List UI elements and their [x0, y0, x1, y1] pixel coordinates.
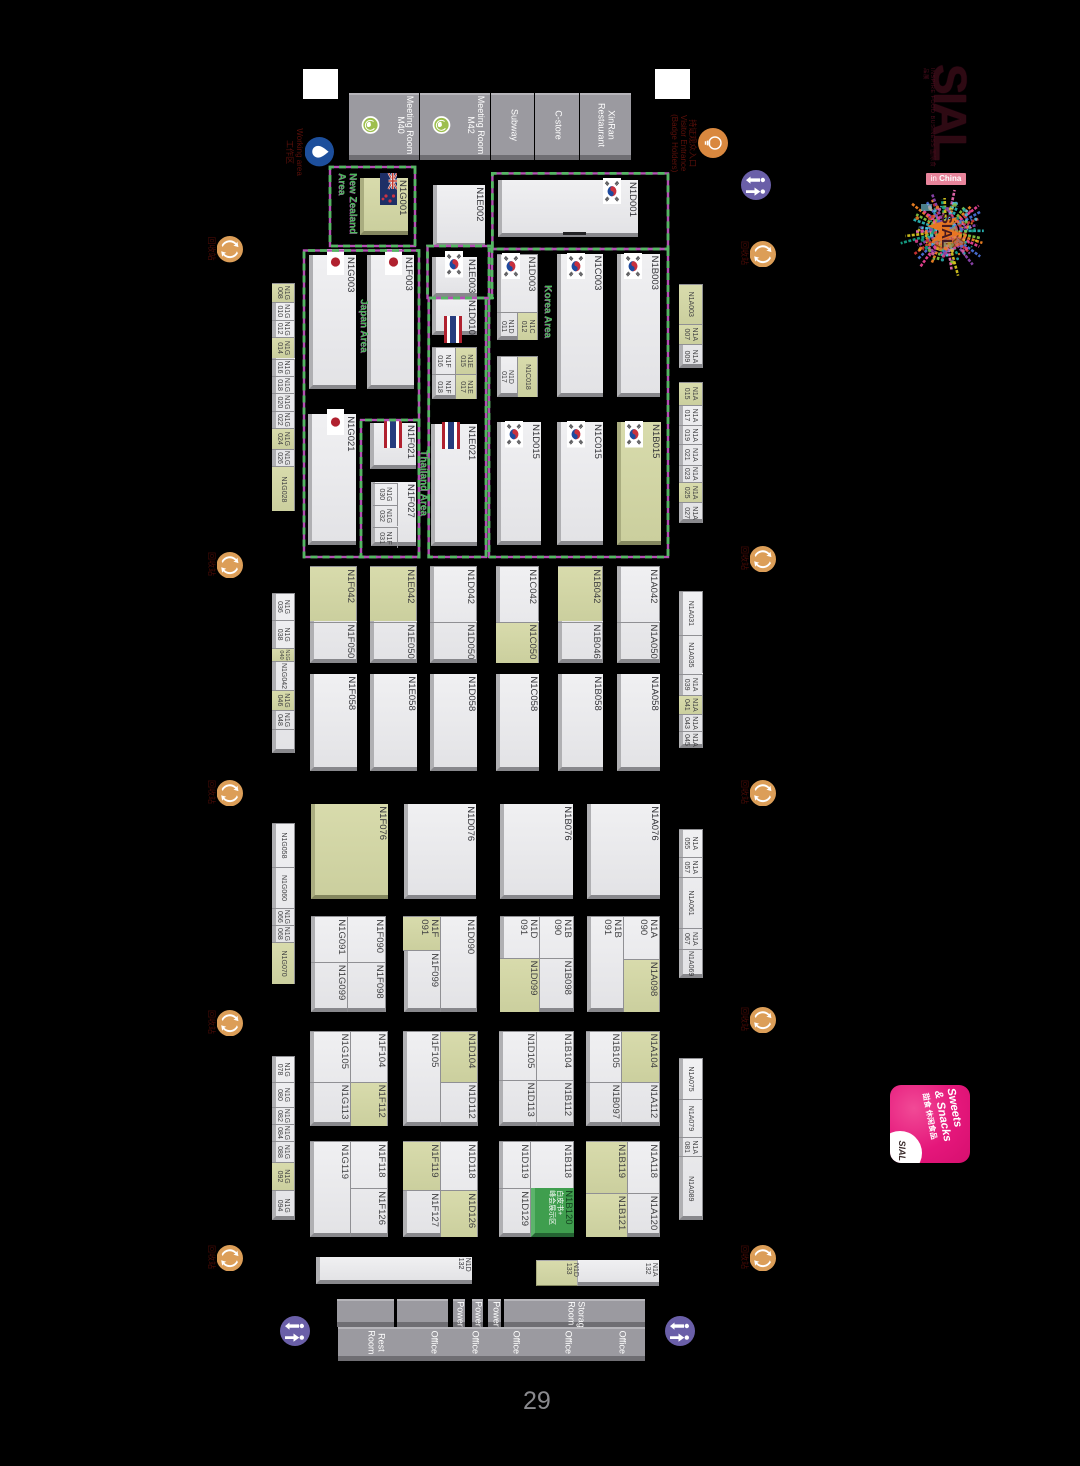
svg-text:SIAL: SIAL [938, 214, 955, 248]
